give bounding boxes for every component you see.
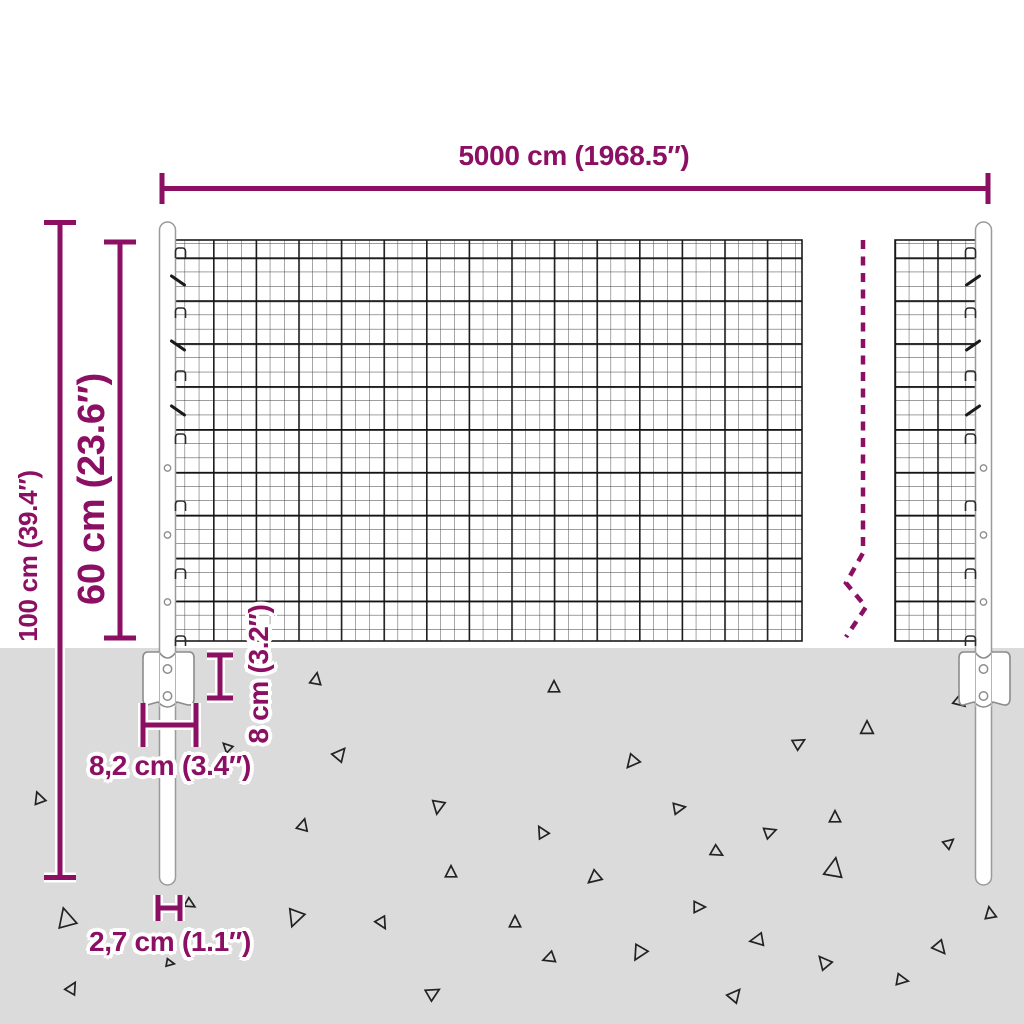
total-height-dimension-label: 100 cm (39.4″) [15,470,41,642]
post-hole [164,532,170,538]
left-post [160,222,176,885]
post-hole [164,599,170,605]
break-line [846,240,866,637]
post-diameter-dimension-label: 2,7 cm (1.1″) [89,928,251,956]
bracket-depth-dimension-label: 8 cm (3.2″) [245,604,273,743]
post-hole [164,465,170,471]
post-hole [980,599,986,605]
ground [0,648,1024,1024]
width-dimension-label: 5000 cm (1968.5″) [459,142,690,170]
right-anchor-bracket [959,652,1010,707]
mesh-height-dimension-label: 60 cm (23.6″) [73,373,111,605]
right-post [976,222,992,885]
left-anchor-bracket [143,652,194,707]
fence-dimension-diagram: 5000 cm (1968.5″) 100 cm (39.4″) 60 cm (… [0,0,1024,1024]
width-dimension-line [162,173,988,204]
post-hole [980,465,986,471]
mesh-panel-left [167,240,802,641]
post-hole [980,532,986,538]
mesh-panel-right [895,240,988,641]
bracket-width-dimension-label: 8,2 cm (3.4″) [89,752,251,780]
